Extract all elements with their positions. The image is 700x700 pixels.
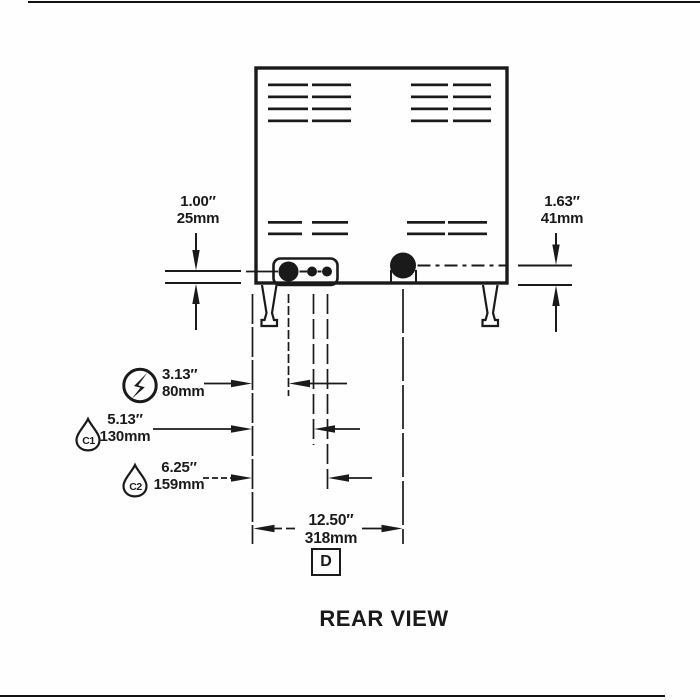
dim-width-metric: 318mm xyxy=(296,530,366,548)
dim-label-c2: 6.25″ 159mm xyxy=(150,460,208,493)
lightning-bolt-icon xyxy=(124,369,156,401)
dim-label-width: 12.50″ 318mm xyxy=(296,512,366,547)
dim-c2-offset xyxy=(203,474,372,482)
dim-c1-offset xyxy=(153,425,360,433)
drain-outlet xyxy=(390,253,507,284)
view-title: REAR VIEW xyxy=(284,606,484,632)
dim-electrical-offset xyxy=(204,380,347,388)
dim-electrical-metric: 80mm xyxy=(162,384,214,401)
left-leg xyxy=(262,285,278,326)
right-leg xyxy=(483,285,499,326)
rear-view-spec-drawing: { "page": { "title": "REAR VIEW" }, "det… xyxy=(0,0,700,700)
extension-lines xyxy=(253,289,404,544)
electrical-connection-panel xyxy=(246,259,338,286)
dim-label-left-height: 1.00″ 25mm xyxy=(167,194,229,227)
dim-right-height xyxy=(518,233,572,332)
dim-label-electrical: 3.13″ 80mm xyxy=(162,367,214,400)
vent-slots xyxy=(268,84,491,236)
dim-label-c1: 5.13″ 130mm xyxy=(96,412,154,445)
terminal-dot-c1 xyxy=(307,267,317,277)
detail-reference-letter: D xyxy=(320,553,332,570)
dim-left-inches: 1.00″ xyxy=(167,194,229,211)
dim-electrical-inches: 3.13″ xyxy=(162,367,214,384)
dim-c1-metric: 130mm xyxy=(96,429,154,446)
terminal-dot-c2 xyxy=(322,267,332,277)
dim-right-metric: 41mm xyxy=(531,211,593,228)
equipment-outline xyxy=(256,68,507,283)
c1-connection-label: C1 xyxy=(77,435,100,447)
diagram-canvas xyxy=(0,0,700,700)
dim-label-right-height: 1.63″ 41mm xyxy=(531,194,593,227)
c2-connection-label: C2 xyxy=(124,481,147,493)
dim-c2-metric: 159mm xyxy=(150,477,208,494)
dim-c1-inches: 5.13″ xyxy=(96,412,154,429)
dim-right-inches: 1.63″ xyxy=(531,194,593,211)
legs xyxy=(262,285,499,326)
electrical-inlet xyxy=(279,262,299,282)
detail-reference-box: D xyxy=(311,548,341,576)
dim-left-height xyxy=(165,233,241,330)
dim-width-inches: 12.50″ xyxy=(296,512,366,530)
dim-left-metric: 25mm xyxy=(167,211,229,228)
dim-c2-inches: 6.25″ xyxy=(150,460,208,477)
